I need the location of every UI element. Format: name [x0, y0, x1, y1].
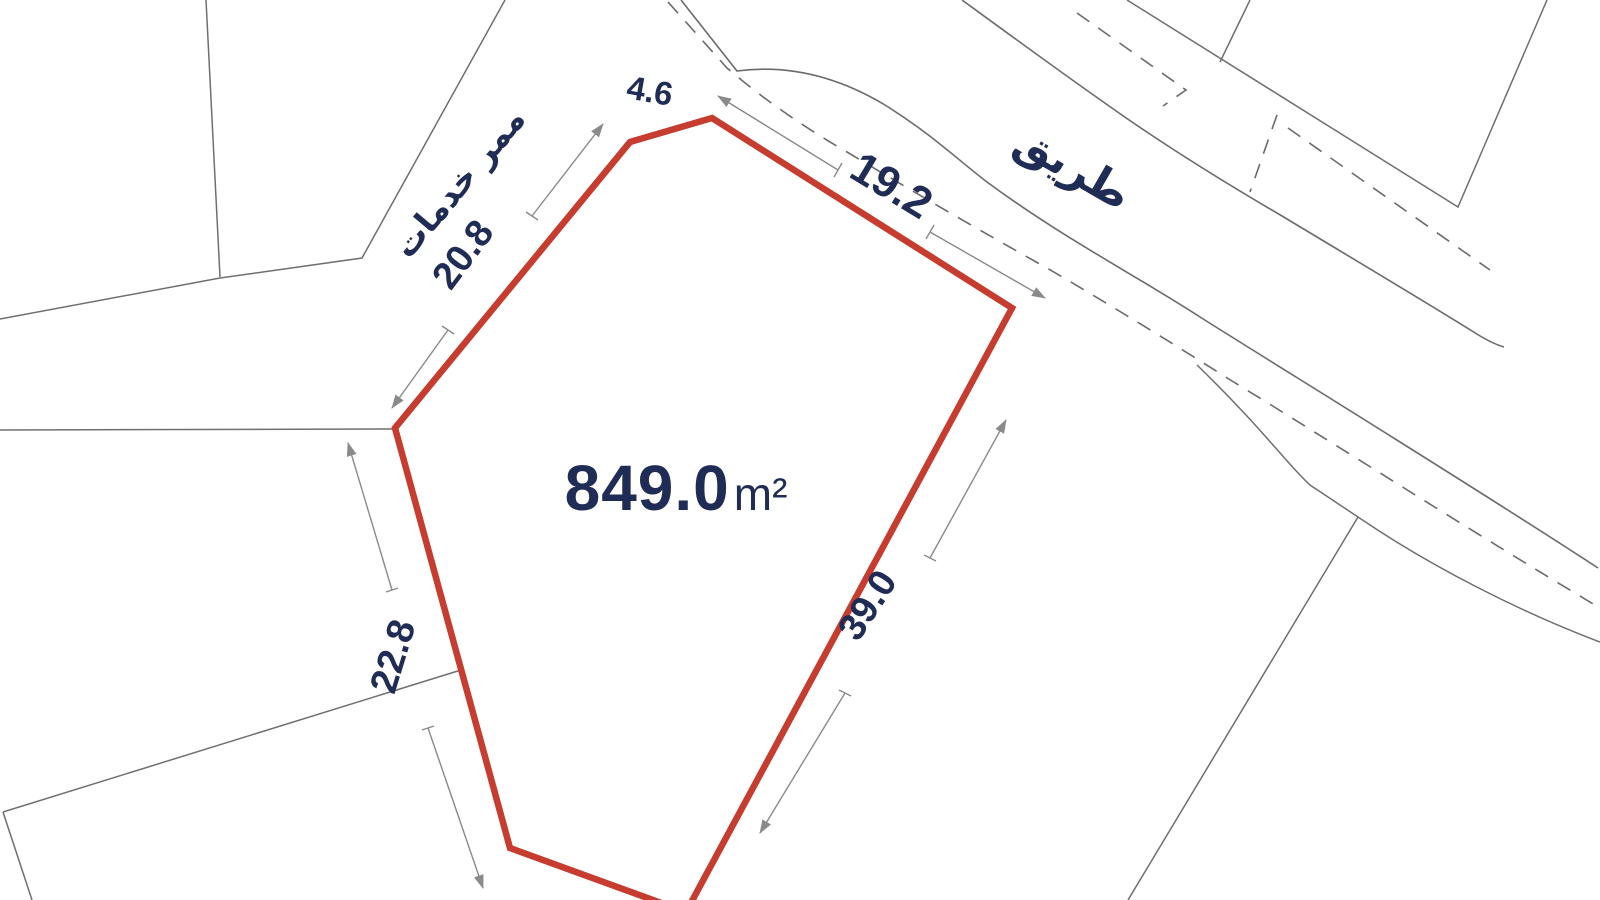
dimension-label-southeast: 39.0: [830, 563, 906, 648]
dashed-lines: [668, 2, 1600, 608]
parcel-line-west: [0, 429, 394, 430]
parcel-line-southeast-front: [1197, 365, 1600, 642]
dim-arrow-northwest-upper: [532, 124, 603, 216]
plot-area-label: 849.0 m²: [565, 452, 788, 524]
survey-map: 4.6 20.8 19.2 22.8 39.0 طريق ممر خدمات 8…: [0, 0, 1600, 900]
plot-area-unit: m²: [734, 468, 788, 520]
road-label: طريق: [1006, 114, 1140, 221]
road-near-edge: [681, 0, 1598, 568]
dimension-label-west: 22.8: [363, 615, 425, 698]
parcel-line-southeast-branch: [1128, 517, 1358, 900]
dimension-label-northeast: 19.2: [842, 143, 941, 229]
dim-arrow-west-lower: [428, 728, 483, 888]
road-edges: [681, 0, 1598, 568]
dim-tick: [926, 225, 934, 239]
dim-tick: [834, 163, 842, 177]
dim-tick: [924, 555, 936, 561]
far-parcel-lines: [1127, 0, 1547, 207]
dashed-property-line-near: [668, 2, 1600, 608]
dashed-line-far-notch: [1250, 115, 1277, 192]
map-labels: 4.6 20.8 19.2 22.8 39.0 طريق ممر خدمات 8…: [363, 68, 1140, 698]
parcel-line-left-vertical: [206, 0, 220, 277]
far-parcel-short-edge: [1220, 0, 1250, 62]
plot-area-value: 849.0: [565, 452, 730, 524]
far-parcel-long-edge: [1127, 0, 1547, 207]
dim-tick: [442, 326, 454, 334]
dimension-label-top: 4.6: [624, 68, 676, 112]
dim-arrow-southeast-lower: [760, 693, 845, 833]
dashed-line-far-b: [1288, 128, 1490, 270]
dim-tick: [526, 212, 538, 220]
dim-arrow-west-upper: [348, 443, 392, 590]
southeast-parcel-lines: [1128, 365, 1600, 900]
survey-map-canvas: 4.6 20.8 19.2 22.8 39.0 طريق ممر خدمات 8…: [0, 0, 1600, 900]
parcel-line-southwest-lower: [3, 812, 32, 900]
dim-tick: [839, 690, 851, 696]
neighbor-parcel-lines: [0, 0, 505, 900]
